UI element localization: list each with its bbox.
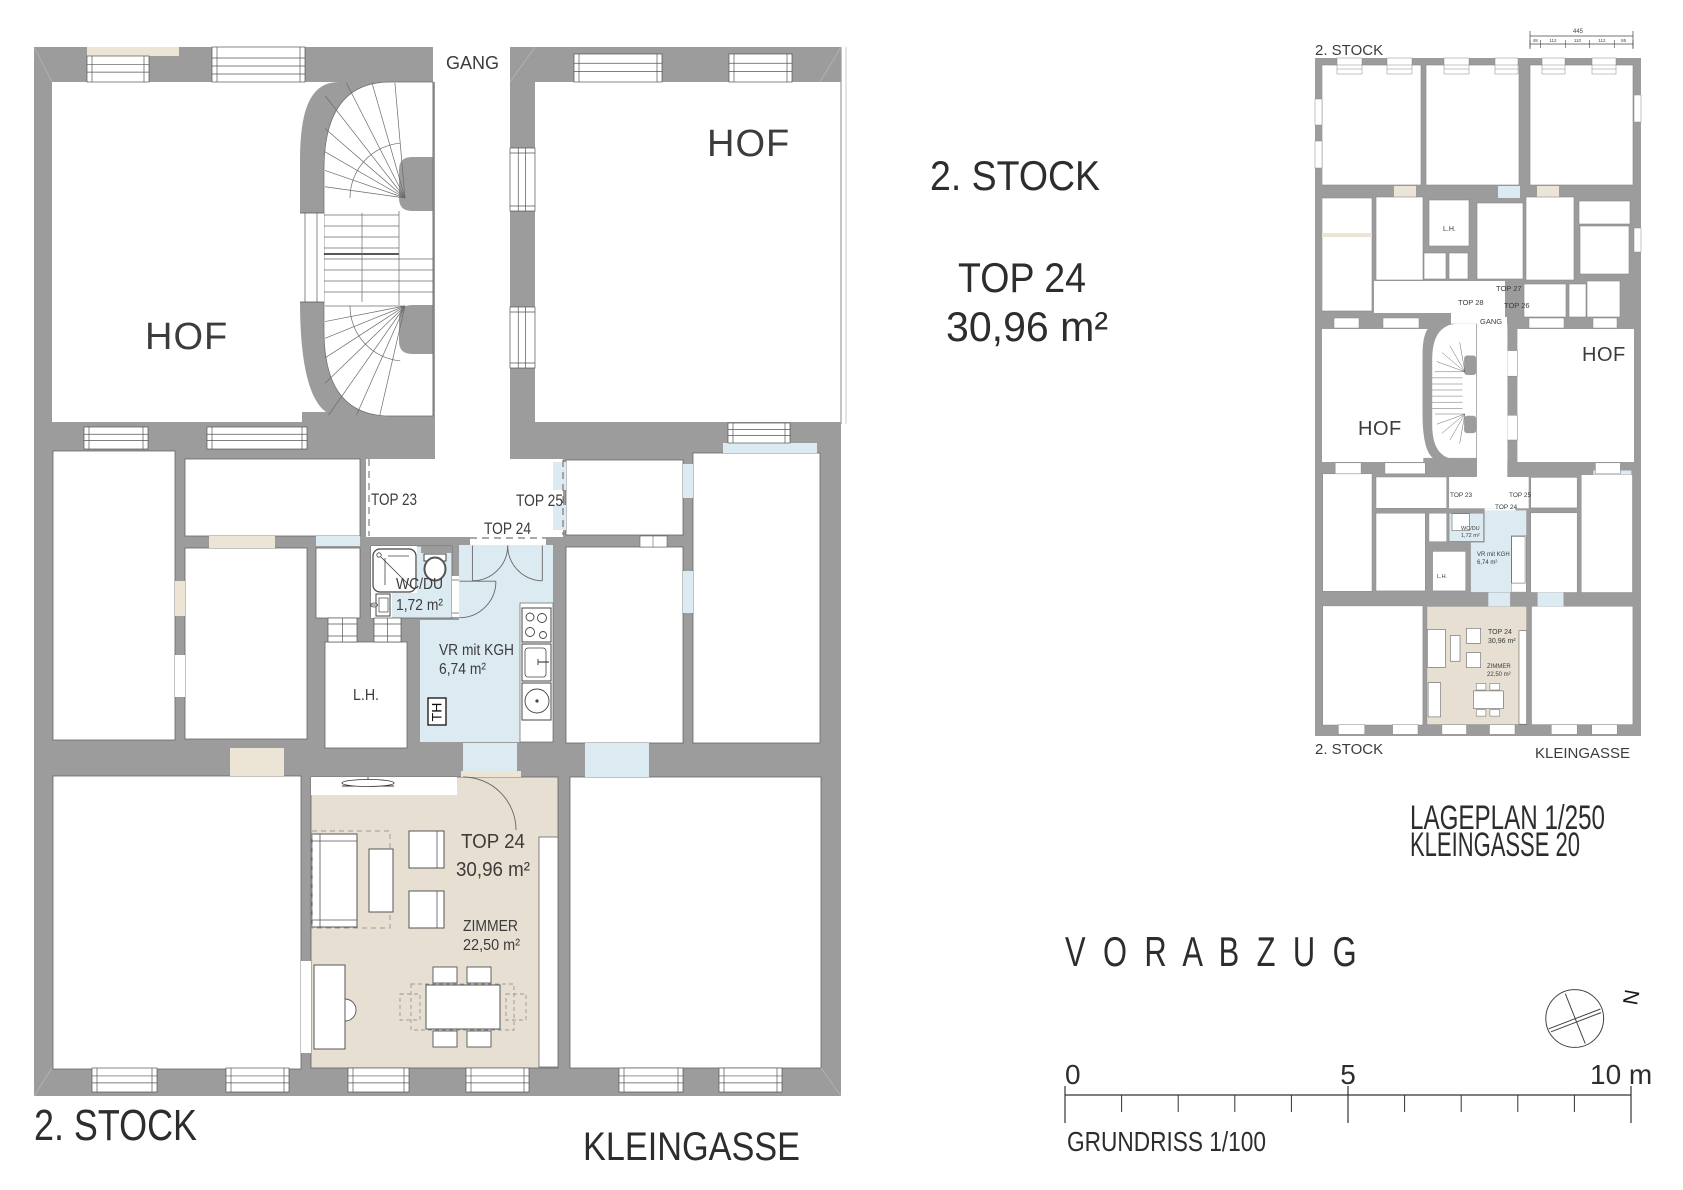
svg-text:TOP 24: TOP 24: [461, 831, 525, 853]
svg-text:KLEINGASSE: KLEINGASSE: [583, 1125, 800, 1169]
svg-text:GANG: GANG: [1480, 317, 1502, 326]
svg-text:ZIMMER: ZIMMER: [1487, 664, 1511, 670]
svg-text:VR mit KGH: VR mit KGH: [439, 642, 514, 659]
svg-text:KLEINGASSE: KLEINGASSE: [1535, 745, 1630, 762]
svg-text:ZIMMER: ZIMMER: [463, 918, 518, 935]
svg-text:2. STOCK: 2. STOCK: [1315, 741, 1383, 758]
svg-text:KLEINGASSE 20: KLEINGASSE 20: [1410, 826, 1580, 864]
svg-text:10 m: 10 m: [1590, 1059, 1652, 1090]
svg-text:VR mit KGH: VR mit KGH: [1477, 552, 1510, 558]
svg-text:48: 48: [1533, 38, 1539, 43]
svg-text:GANG: GANG: [446, 53, 499, 73]
svg-text:2. STOCK: 2. STOCK: [930, 152, 1100, 199]
svg-text:6,74 m²: 6,74 m²: [1477, 560, 1497, 566]
svg-text:HOF: HOF: [145, 316, 228, 358]
svg-text:TOP 24: TOP 24: [1488, 629, 1512, 636]
svg-text:L.H.: L.H.: [1443, 226, 1456, 233]
svg-text:1,72 m²: 1,72 m²: [396, 597, 444, 614]
svg-text:0: 0: [1065, 1059, 1081, 1090]
svg-text:TOP 25: TOP 25: [516, 491, 563, 510]
svg-text:445: 445: [1573, 29, 1584, 35]
svg-text:112: 112: [1598, 38, 1606, 43]
svg-text:2. STOCK: 2. STOCK: [34, 1101, 197, 1150]
svg-text:HOF: HOF: [1582, 344, 1626, 366]
svg-text:30,96 m²: 30,96 m²: [946, 303, 1108, 350]
svg-text:TOP 24: TOP 24: [958, 254, 1086, 301]
svg-text:TOP 24: TOP 24: [1495, 504, 1518, 511]
svg-text:85: 85: [1621, 38, 1627, 43]
svg-text:30,96 m²: 30,96 m²: [1488, 638, 1516, 645]
svg-text:GRUNDRISS 1/100: GRUNDRISS 1/100: [1067, 1126, 1266, 1157]
svg-text:HOF: HOF: [707, 123, 790, 165]
svg-text:TOP 24: TOP 24: [484, 519, 531, 538]
svg-text:30,96 m²: 30,96 m²: [456, 859, 530, 881]
svg-text:WC/DU: WC/DU: [396, 576, 443, 593]
svg-text:WC/DU: WC/DU: [1461, 526, 1480, 532]
svg-text:22,50 m²: 22,50 m²: [463, 937, 521, 954]
svg-text:L.H.: L.H.: [1437, 574, 1448, 580]
svg-text:TOP 23: TOP 23: [1450, 492, 1473, 499]
svg-text:TOP 26: TOP 26: [1504, 301, 1530, 310]
svg-text:5: 5: [1340, 1059, 1356, 1090]
svg-text:1,72 m²: 1,72 m²: [1461, 533, 1480, 539]
svg-text:112: 112: [1549, 38, 1557, 43]
svg-text:HOF: HOF: [1358, 418, 1402, 440]
svg-text:110: 110: [1574, 38, 1582, 43]
svg-text:22,50 m²: 22,50 m²: [1487, 672, 1511, 678]
svg-text:TH: TH: [429, 703, 445, 722]
svg-text:L.H.: L.H.: [353, 687, 379, 704]
svg-text:2. STOCK: 2. STOCK: [1315, 42, 1383, 59]
svg-text:TOP 27: TOP 27: [1496, 284, 1522, 293]
svg-text:TOP 23: TOP 23: [371, 490, 417, 509]
svg-text:TOP 25: TOP 25: [1509, 492, 1532, 499]
svg-text:TOP 28: TOP 28: [1458, 298, 1484, 307]
svg-text:V O R A B Z U G: V O R A B Z U G: [1065, 928, 1361, 975]
svg-text:6,74 m²: 6,74 m²: [439, 661, 487, 678]
